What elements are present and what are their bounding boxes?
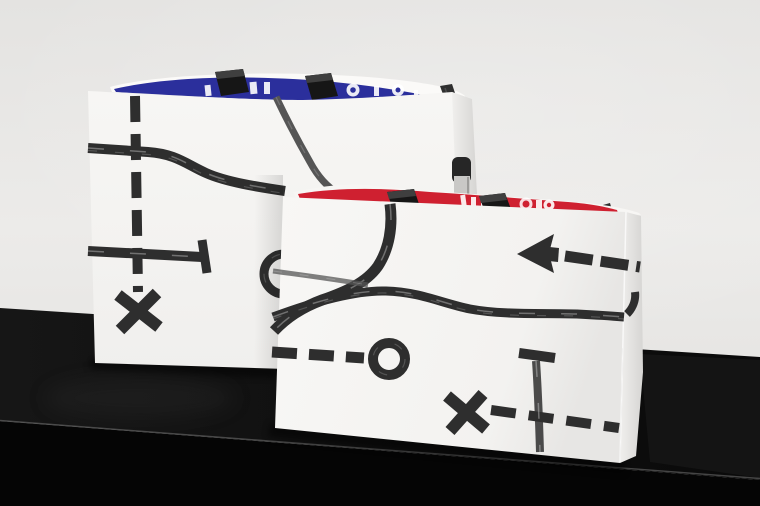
arrow-left-shaft xyxy=(539,246,559,262)
plinth-reflection-haze xyxy=(45,376,235,420)
plinth-right-sheen xyxy=(640,354,760,478)
letter-fragment xyxy=(374,86,379,96)
t-terminus-bar xyxy=(202,240,207,273)
letter-fragment-hole xyxy=(547,203,551,207)
photo-scene xyxy=(0,0,760,506)
letter-fragment-hole xyxy=(350,87,356,93)
letter-fragment xyxy=(204,85,211,97)
front-shopping-bag xyxy=(268,157,643,473)
dashed-line-to-ring xyxy=(272,352,364,358)
letter-fragment-hole xyxy=(396,88,401,93)
photo-canvas xyxy=(0,0,760,506)
letter-fragment xyxy=(249,82,257,95)
t-post-cap xyxy=(519,353,555,358)
letter-fragment xyxy=(264,82,270,94)
